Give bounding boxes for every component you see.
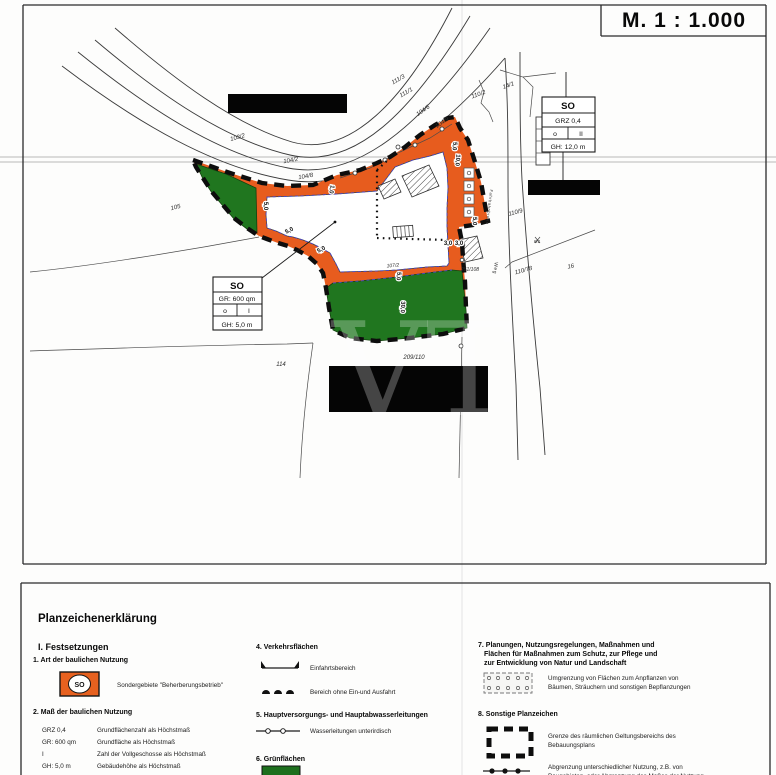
so-right-title: SO [561, 101, 575, 112]
parcel-label: 114 [276, 362, 286, 368]
legend-s8-a2: Bebauungsplans [548, 742, 595, 749]
legend-s4-heading: 4. Verkehrsflächen [256, 644, 318, 651]
legend-s7-h3: zur Entwicklung von Natur und Landschaft [484, 660, 627, 667]
s2-key-grz: GRZ 0,4 [42, 727, 66, 734]
s2-key-gr: GR: 600 qm [42, 739, 76, 746]
plan-boundary-symbol [489, 729, 531, 756]
dim-label: 5,0 [451, 142, 458, 151]
so-left-title: SO [230, 281, 244, 292]
redaction-box-top [228, 94, 347, 113]
s2-val-gr: Grundfläche als Höchstmaß [97, 739, 175, 746]
dim-label: 3,0 [444, 241, 453, 247]
legend-s5-l1: Wasserleitungen unterirdisch [310, 728, 391, 735]
parcel-label: 8/1 [534, 239, 541, 244]
legend-s1-label: Sondergebiete "Beherberungsbetrieb" [117, 682, 223, 689]
so-right-grz: GRZ 0,4 [555, 118, 581, 125]
legend-s8-heading: 8. Sonstige Planzeichen [478, 711, 558, 718]
legend-festsetzungen: I. Festsetzungen [38, 642, 109, 652]
dim-label: 5,0 [471, 217, 477, 226]
s2-val-gh: Gebäudehöhe als Höchstmaß [97, 763, 181, 770]
plan-sheet: M. 1 : 1.000 [0, 0, 776, 775]
dim-label: 5,0 [262, 202, 268, 211]
legend-title: Planzeichenerklärung [38, 613, 157, 625]
legend-s8-b1: Abgrenzung unterschiedlicher Nutzung, z.… [548, 764, 683, 771]
planting-boundary-symbol [484, 673, 532, 693]
dim-label: 30,0 [399, 301, 406, 314]
legend-s2-heading: 2. Maß der baulichen Nutzung [33, 709, 132, 716]
street-label: Weg [491, 262, 498, 275]
so-swatch-label: SO [74, 682, 85, 689]
parcel-label: 107/2 [386, 262, 399, 269]
dim-label: 3,0 [455, 241, 464, 247]
dim-label: 10,0 [453, 154, 460, 167]
usage-separation-symbol [483, 768, 530, 773]
dim-label: 5,0 [395, 272, 402, 281]
green-area-west [196, 164, 257, 233]
parcel-label: 16 [567, 263, 575, 270]
parcel-label: 104/8 [298, 173, 314, 182]
s2-val-grz: Grundflächenzahl als Höchstmaß [97, 727, 190, 734]
parcel-label: 110/2 [471, 90, 487, 101]
water-line-symbol [256, 729, 300, 734]
watermark: VT [330, 294, 513, 446]
s2-key-i: I [42, 751, 44, 758]
so-area-swatch: SO [60, 672, 99, 696]
street-labels: WegFahrbahnbreite [485, 189, 499, 274]
bebauungsplan-svg: M. 1 : 1.000 [0, 0, 776, 775]
scale-label: M. 1 : 1.000 [622, 9, 746, 32]
parcel-label: 104/2 [283, 157, 299, 166]
parcel-label: 14/1 [502, 81, 515, 91]
legend-s7-h1: 7. Planungen, Nutzungsregelungen, Maßnah… [478, 642, 655, 649]
legend-s7-l2: Bäumen, Sträuchern und sonstigen Bepflan… [548, 684, 691, 691]
no-access-symbol [262, 690, 294, 694]
so-right-o: o [553, 131, 557, 138]
legend-s4-l1: Einfahrtsbereich [310, 665, 356, 672]
parcel-label: 110/9 [508, 208, 524, 218]
legend-s7-l1: Umgrenzung von Flächen zum Anpflanzen vo… [548, 675, 679, 682]
so-left-storeys: I [248, 308, 250, 315]
parcel-label: 209/110 [402, 355, 425, 361]
legend-s4-l2: Bereich ohne Ein-und Ausfahrt [310, 689, 396, 696]
so-left-gr: GR: 600 qm [219, 296, 256, 303]
legend-s5-heading: 5. Hauptversorgungs- und Hauptabwasserle… [256, 712, 428, 719]
entrance-area-symbol [261, 661, 299, 668]
green-area-swatch [262, 766, 300, 775]
legend-s2-rows: GRZ 0,4 Grundflächenzahl als Höchstmaß G… [42, 727, 206, 770]
legend-s8-a1: Grenze des räumlichen Geltungsbereichs d… [548, 733, 676, 740]
s2-key-gh: GH: 5,0 m [42, 763, 71, 770]
legend-s6-heading: 6. Grünflächen [256, 756, 305, 763]
parcel-label: 251/108 [460, 267, 479, 273]
redaction-box-right [528, 180, 600, 195]
parcel-label: 110/78 [514, 266, 533, 277]
so-left-gh: GH: 5,0 m [222, 322, 253, 329]
so-left-o: o [223, 308, 227, 315]
parcel-label: 105 [170, 204, 182, 213]
building-outline-ticks [393, 225, 414, 237]
legend-s1-heading: 1. Art der baulichen Nutzung [33, 657, 128, 664]
so-right-storeys: II [579, 131, 583, 138]
parcel-label: 104/6 [416, 104, 432, 118]
so-right-gh: GH: 12,0 m [551, 144, 586, 151]
legend-s7-h2: Flächen für Maßnahmen zum Schutz, zur Pf… [484, 651, 657, 658]
s2-val-i: Zahl der Vollgeschosse als Höchstmaß [97, 751, 206, 758]
